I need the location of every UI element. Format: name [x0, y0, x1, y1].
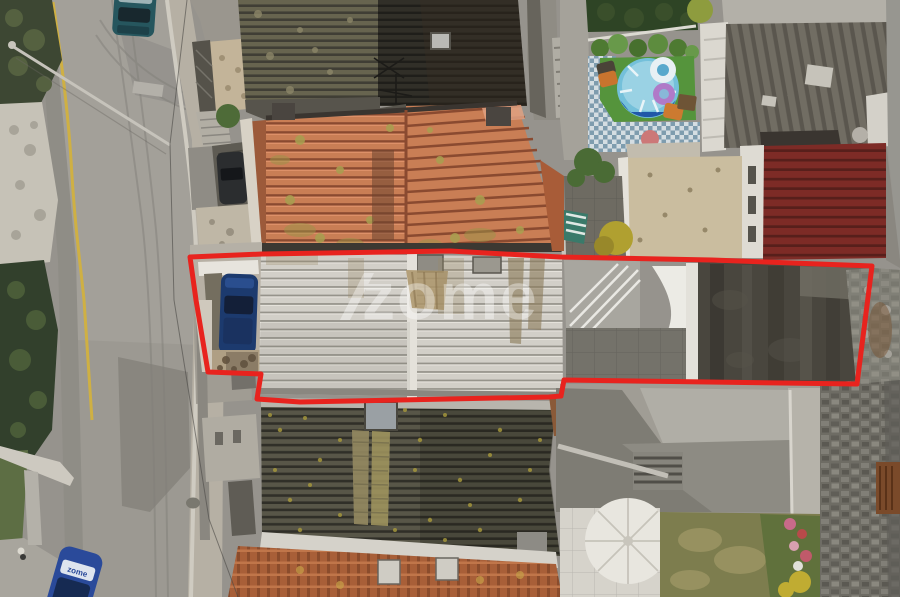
svg-text:zome: zome	[362, 259, 539, 333]
